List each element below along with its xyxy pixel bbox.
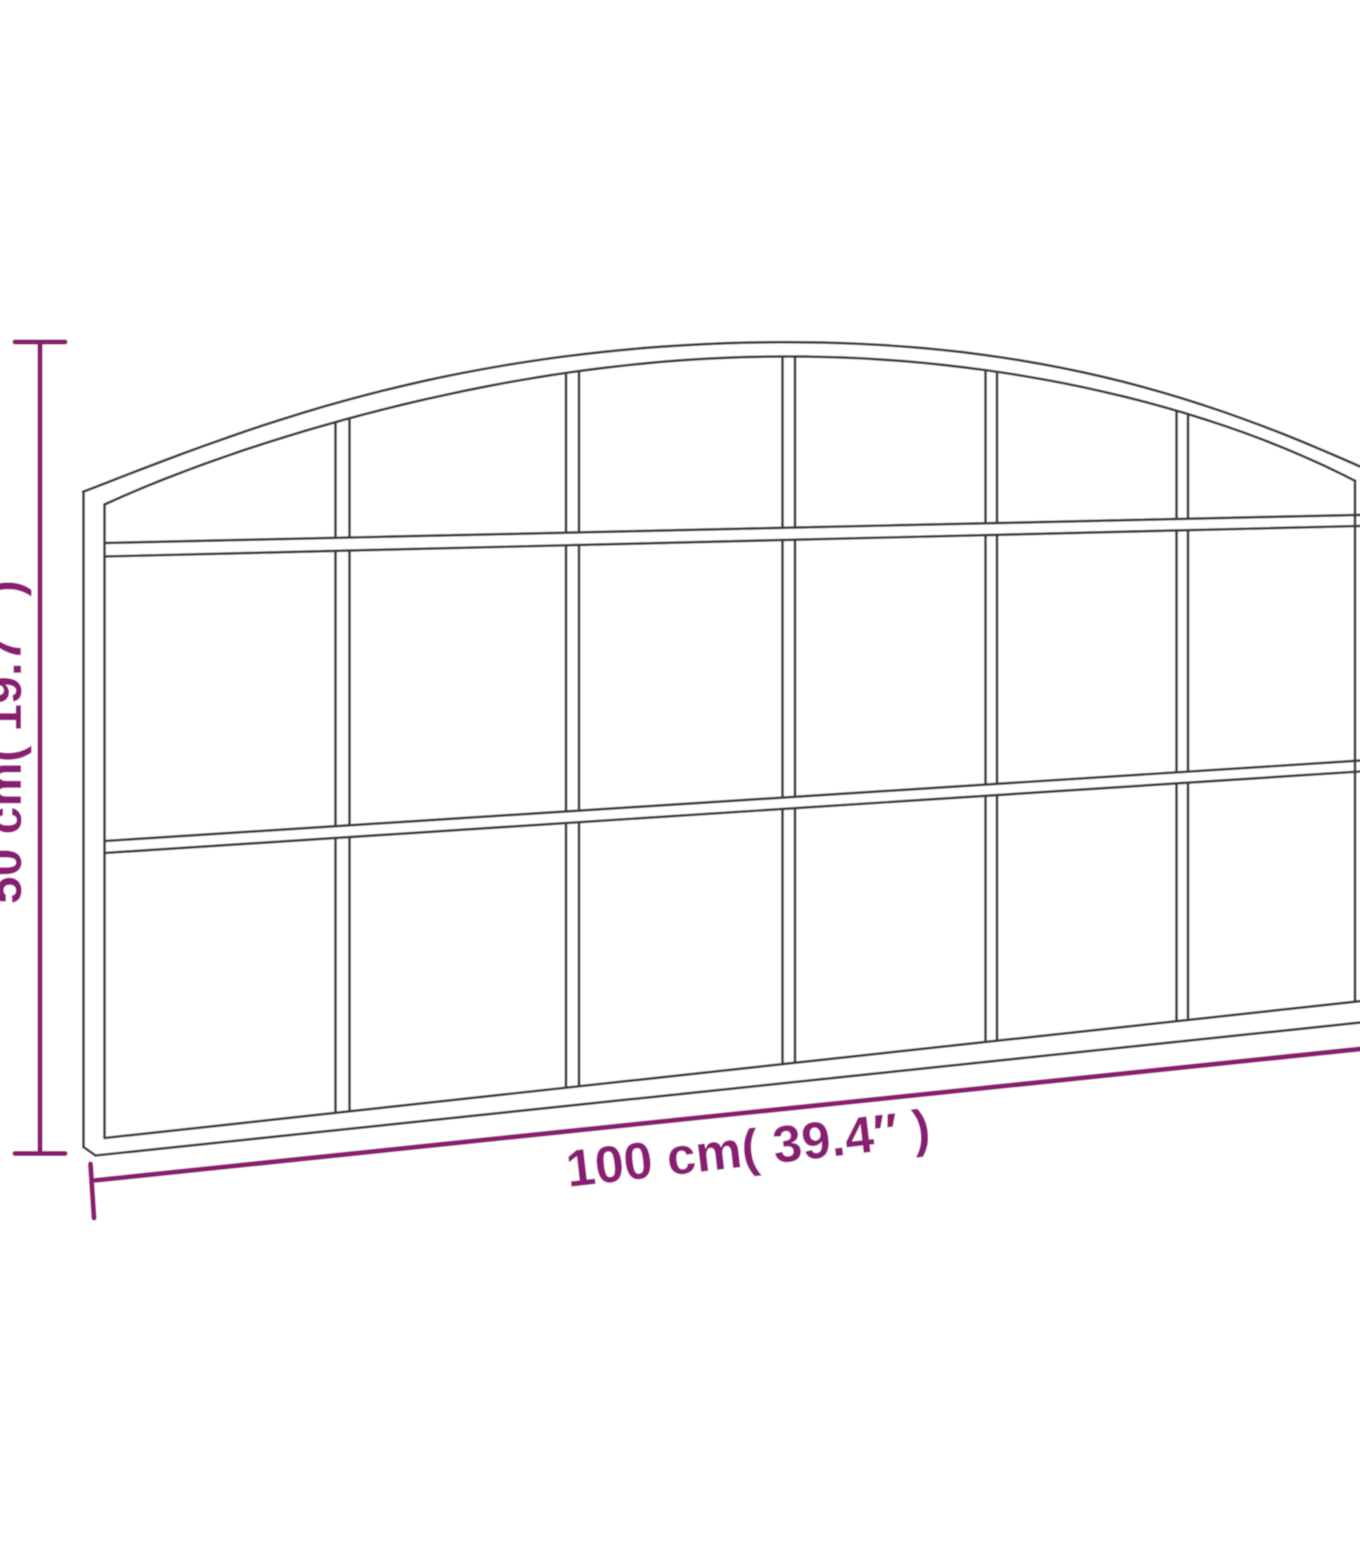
svg-text:50 cm( 19.7″ ): 50 cm( 19.7″ ) <box>0 580 32 904</box>
